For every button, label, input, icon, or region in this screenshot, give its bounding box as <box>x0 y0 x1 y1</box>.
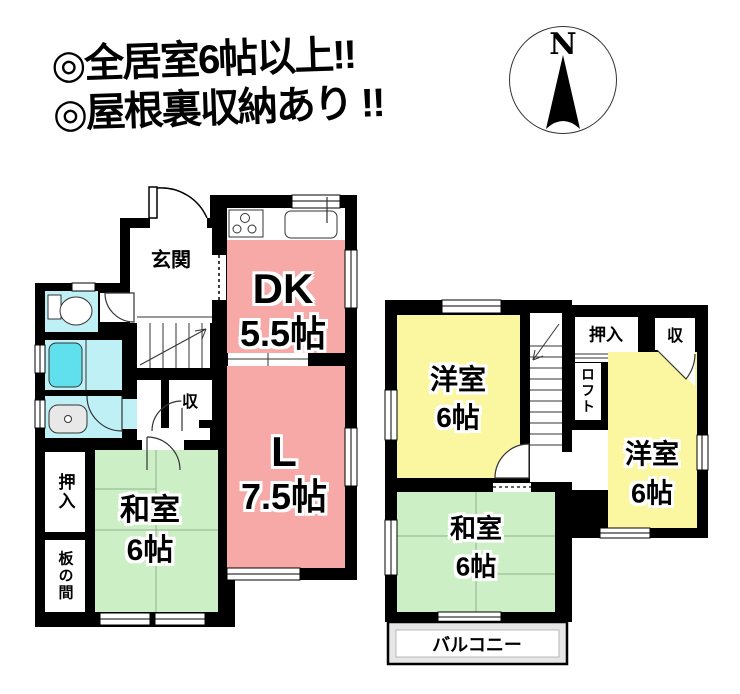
f2-tatami-size: 6帖 <box>456 547 496 584</box>
f1-entrance-door <box>149 187 207 230</box>
sink-icon <box>285 211 337 238</box>
f2-stairs <box>530 313 562 452</box>
f1-dk-size: 5.5帖 <box>240 305 326 357</box>
f1-woodfloor-label: 板の間 <box>55 551 76 602</box>
f2-tatami-label: 和室 <box>450 509 502 546</box>
f2-western2-size: 6帖 <box>631 472 673 511</box>
f1-living-size: 7.5帖 <box>241 468 327 520</box>
f2-loft-label: ロフト <box>578 367 598 415</box>
f1-stairs <box>137 323 210 368</box>
f1-tatami-size: 6帖 <box>127 525 174 569</box>
f1-closet-label: 押入 <box>53 473 78 511</box>
f2-western1-label: 洋室 <box>430 358 486 398</box>
toilet-icon <box>60 297 92 325</box>
bathtub-icon <box>49 343 82 387</box>
f1-storage-label: 収 <box>182 388 198 412</box>
page: { "banner": { "line1": "◎全居室6帖以上!!", "li… <box>0 0 740 694</box>
f2-balcony-label: バルコニー <box>432 631 522 657</box>
headline-banner: ◎全居室6帖以上!! ◎屋根裏収納あり !! <box>50 27 483 140</box>
f2-western1-size: 6帖 <box>436 396 480 436</box>
f1-tatami-label: 和室 <box>120 485 180 529</box>
f1-entrance-label: 玄関 <box>151 244 191 273</box>
f2-storage-label: 収 <box>667 322 683 346</box>
f2-western2-label: 洋室 <box>625 433 679 472</box>
compass-needle-icon <box>510 27 616 133</box>
compass: N <box>509 26 617 134</box>
f2-openings <box>493 483 531 492</box>
f2-closet-label: 押入 <box>589 321 623 346</box>
